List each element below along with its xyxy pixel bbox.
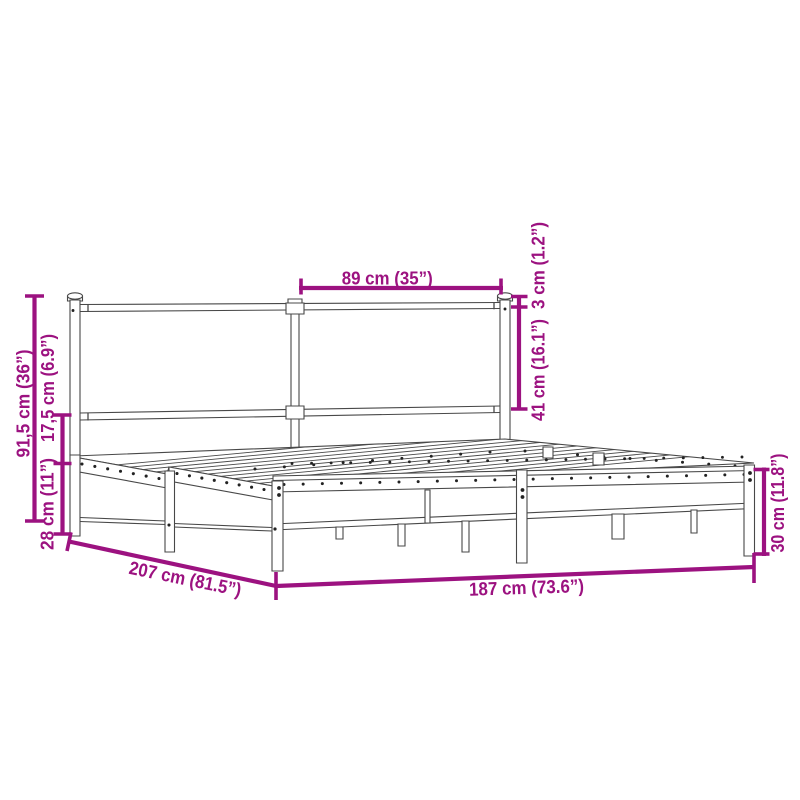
svg-text:41 cm (16.1”): 41 cm (16.1”) (528, 319, 549, 421)
svg-text:187 cm (73.6”): 187 cm (73.6”) (469, 575, 585, 600)
svg-text:3 cm (1.2”): 3 cm (1.2”) (528, 222, 549, 309)
svg-text:28 cm (11”): 28 cm (11”) (37, 458, 58, 550)
svg-text:30 cm (11.8”): 30 cm (11.8”) (767, 454, 788, 553)
svg-text:89 cm (35”): 89 cm (35”) (342, 268, 433, 289)
svg-text:17,5 cm (6.9”): 17,5 cm (6.9”) (37, 334, 58, 442)
svg-text:91,5 cm (36”): 91,5 cm (36”) (13, 350, 34, 458)
svg-text:207 cm (81.5”): 207 cm (81.5”) (127, 557, 243, 600)
